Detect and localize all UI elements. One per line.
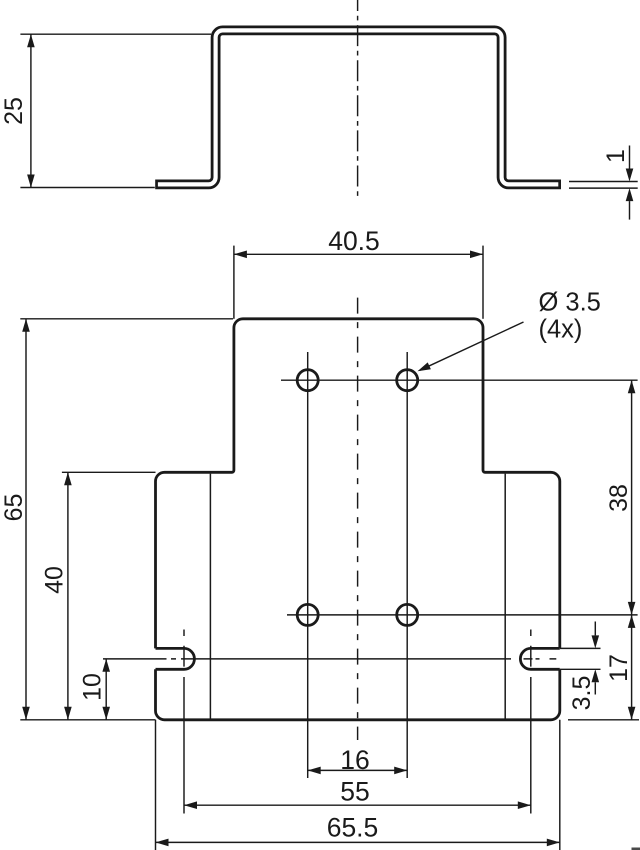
svg-text:1: 1: [602, 149, 630, 163]
svg-text:3.5: 3.5: [568, 676, 596, 711]
svg-text:16: 16: [340, 745, 369, 775]
svg-text:40: 40: [40, 566, 68, 594]
svg-text:65.5: 65.5: [327, 813, 379, 843]
svg-text:65: 65: [0, 494, 28, 522]
svg-text:25: 25: [0, 97, 28, 125]
svg-text:17: 17: [605, 654, 633, 682]
svg-text:40.5: 40.5: [328, 226, 380, 256]
svg-text:38: 38: [605, 484, 633, 512]
svg-text:(4x): (4x): [539, 316, 583, 344]
svg-text:55: 55: [340, 776, 369, 806]
svg-text:Ø 3.5: Ø 3.5: [539, 289, 601, 317]
svg-text:10: 10: [79, 673, 107, 701]
